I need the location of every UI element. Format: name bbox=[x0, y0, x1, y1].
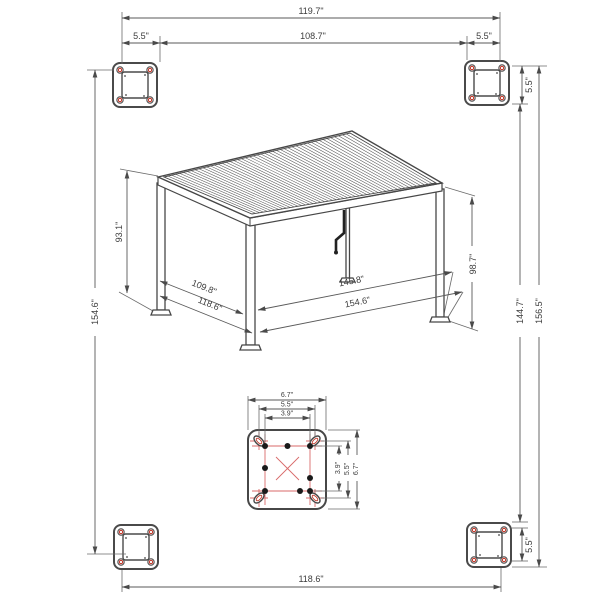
dim-top-left-offset: 5.5" bbox=[133, 31, 149, 41]
dim-plate-width-mid: 5.5" bbox=[281, 402, 294, 409]
post-front-base bbox=[240, 345, 261, 350]
dim-plate-width-inner: 3.9" bbox=[281, 411, 294, 418]
drawing-svg: 119.7" 5.5" 108.7" 5.5" 154.6" 5.5" 144.… bbox=[0, 0, 600, 600]
louver-drive-rod bbox=[346, 208, 350, 278]
base-plate-bottom-right bbox=[467, 523, 511, 567]
dim-right-inner: 144.7" bbox=[515, 298, 525, 324]
post-right-base bbox=[430, 317, 450, 322]
dim-plate-height-inner: 3.9" bbox=[335, 461, 342, 474]
dim-plate-height-outer: 6.7" bbox=[353, 462, 360, 475]
base-plate-top-left bbox=[113, 63, 157, 107]
dim-plate-height-mid: 5.5" bbox=[344, 462, 351, 475]
crank-handle-knob bbox=[334, 251, 338, 255]
dim-right-overall: 156.5" bbox=[534, 298, 544, 324]
dim-top-right-offset: 5.5" bbox=[476, 31, 492, 41]
pergola-dimension-drawing: 119.7" 5.5" 108.7" 5.5" 154.6" 5.5" 144.… bbox=[0, 0, 600, 600]
dim-plate-width-outer: 6.7" bbox=[281, 392, 294, 399]
base-plate-bottom-left bbox=[114, 525, 158, 569]
dim-right-plate-bottom: 5.5" bbox=[524, 537, 534, 553]
post-right bbox=[436, 189, 444, 317]
dim-top-overall: 119.7" bbox=[298, 6, 323, 16]
dim-left-overall: 154.6" bbox=[90, 299, 100, 325]
dim-bottom-overall: 118.6" bbox=[298, 574, 323, 584]
post-back-left-base bbox=[151, 310, 171, 315]
dim-post-right-height: 98.7" bbox=[468, 254, 478, 275]
post-front bbox=[246, 224, 255, 345]
dim-top-inner: 108.7" bbox=[300, 31, 326, 41]
base-plate-top-right bbox=[465, 61, 509, 105]
dim-post-left-height: 93.1" bbox=[114, 222, 124, 243]
post-back-left bbox=[157, 183, 165, 310]
dim-right-plate-top: 5.5" bbox=[524, 77, 534, 93]
